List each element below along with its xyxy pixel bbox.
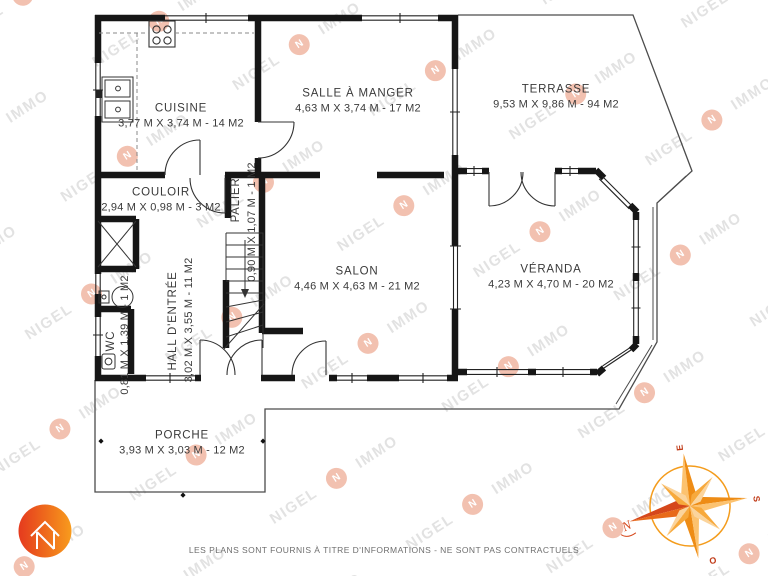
room-name: VÉRANDA bbox=[488, 264, 614, 276]
compass-west-label: O bbox=[709, 555, 717, 566]
floor-plan-page: NIGELNIMMONIGELNIMMONIGELNIMMONIGELNIMMO… bbox=[0, 0, 768, 576]
room-label-terrasse: TERRASSE 9,53 M X 9,86 M - 94 M2 bbox=[493, 84, 619, 111]
room-dims-palier: 0,90 M X 1,07 M - 1 M2 bbox=[246, 162, 258, 281]
room-label-cuisine: CUISINE 3,77 M X 3,74 M - 14 M2 bbox=[118, 103, 244, 130]
compass-east-label: E bbox=[675, 444, 686, 451]
room-label-wc: WC bbox=[105, 331, 117, 352]
compass-north-label: N bbox=[619, 516, 635, 534]
room-name: CUISINE bbox=[118, 103, 244, 115]
disclaimer-text: LES PLANS SONT FOURNIS À TITRE D'INFORMA… bbox=[0, 545, 768, 555]
room-label-porche: PORCHE 3,93 M X 3,03 M - 12 M2 bbox=[119, 430, 245, 457]
stairs bbox=[224, 233, 264, 349]
room-dims: 4,46 M X 4,63 M - 21 M2 bbox=[294, 281, 420, 293]
room-label-salle-a-manger: SALLE À MANGER 4,63 M X 3,74 M - 17 M2 bbox=[295, 88, 421, 115]
sliding-door bbox=[450, 246, 461, 309]
room-label-couloir: COULOIR 2,94 M X 0,98 M - 3 M2 bbox=[101, 187, 220, 214]
room-name: PORCHE bbox=[119, 430, 245, 442]
room-dims: 4,63 M X 3,74 M - 17 M2 bbox=[295, 103, 421, 115]
toilet-icon bbox=[102, 354, 115, 369]
room-dims: 9,53 M X 9,86 M - 94 M2 bbox=[493, 99, 619, 111]
room-dims: 4,23 M X 4,70 M - 20 M2 bbox=[488, 279, 614, 291]
room-dims-hall-entree: 3,02 M X 3,55 M - 11 M2 bbox=[183, 258, 195, 383]
room-dims: 3,77 M X 3,74 M - 14 M2 bbox=[118, 118, 244, 130]
room-label-palier: PALIER bbox=[230, 178, 242, 223]
room-name: COULOIR bbox=[101, 187, 220, 199]
room-dims: 2,94 M X 0,98 M - 3 M2 bbox=[101, 202, 220, 214]
room-dims-wc: 0,81 M X 1,39 M - 1 M2 bbox=[119, 275, 131, 394]
room-label-veranda: VÉRANDA 4,23 M X 4,70 M - 20 M2 bbox=[488, 264, 614, 291]
closet bbox=[98, 221, 136, 267]
room-name: SALON bbox=[294, 266, 420, 278]
compass-north-flourish bbox=[621, 533, 636, 537]
kitchen-stove-icon bbox=[149, 21, 175, 47]
room-label-hall-entree: HALL D'ENTRÉE bbox=[167, 271, 179, 370]
compass-south-label: S bbox=[751, 495, 762, 502]
room-label-salon: SALON 4,46 M X 4,63 M - 21 M2 bbox=[294, 266, 420, 293]
room-name: TERRASSE bbox=[493, 84, 619, 96]
room-name: SALLE À MANGER bbox=[295, 88, 421, 100]
room-dims: 3,93 M X 3,03 M - 12 M2 bbox=[119, 445, 245, 457]
